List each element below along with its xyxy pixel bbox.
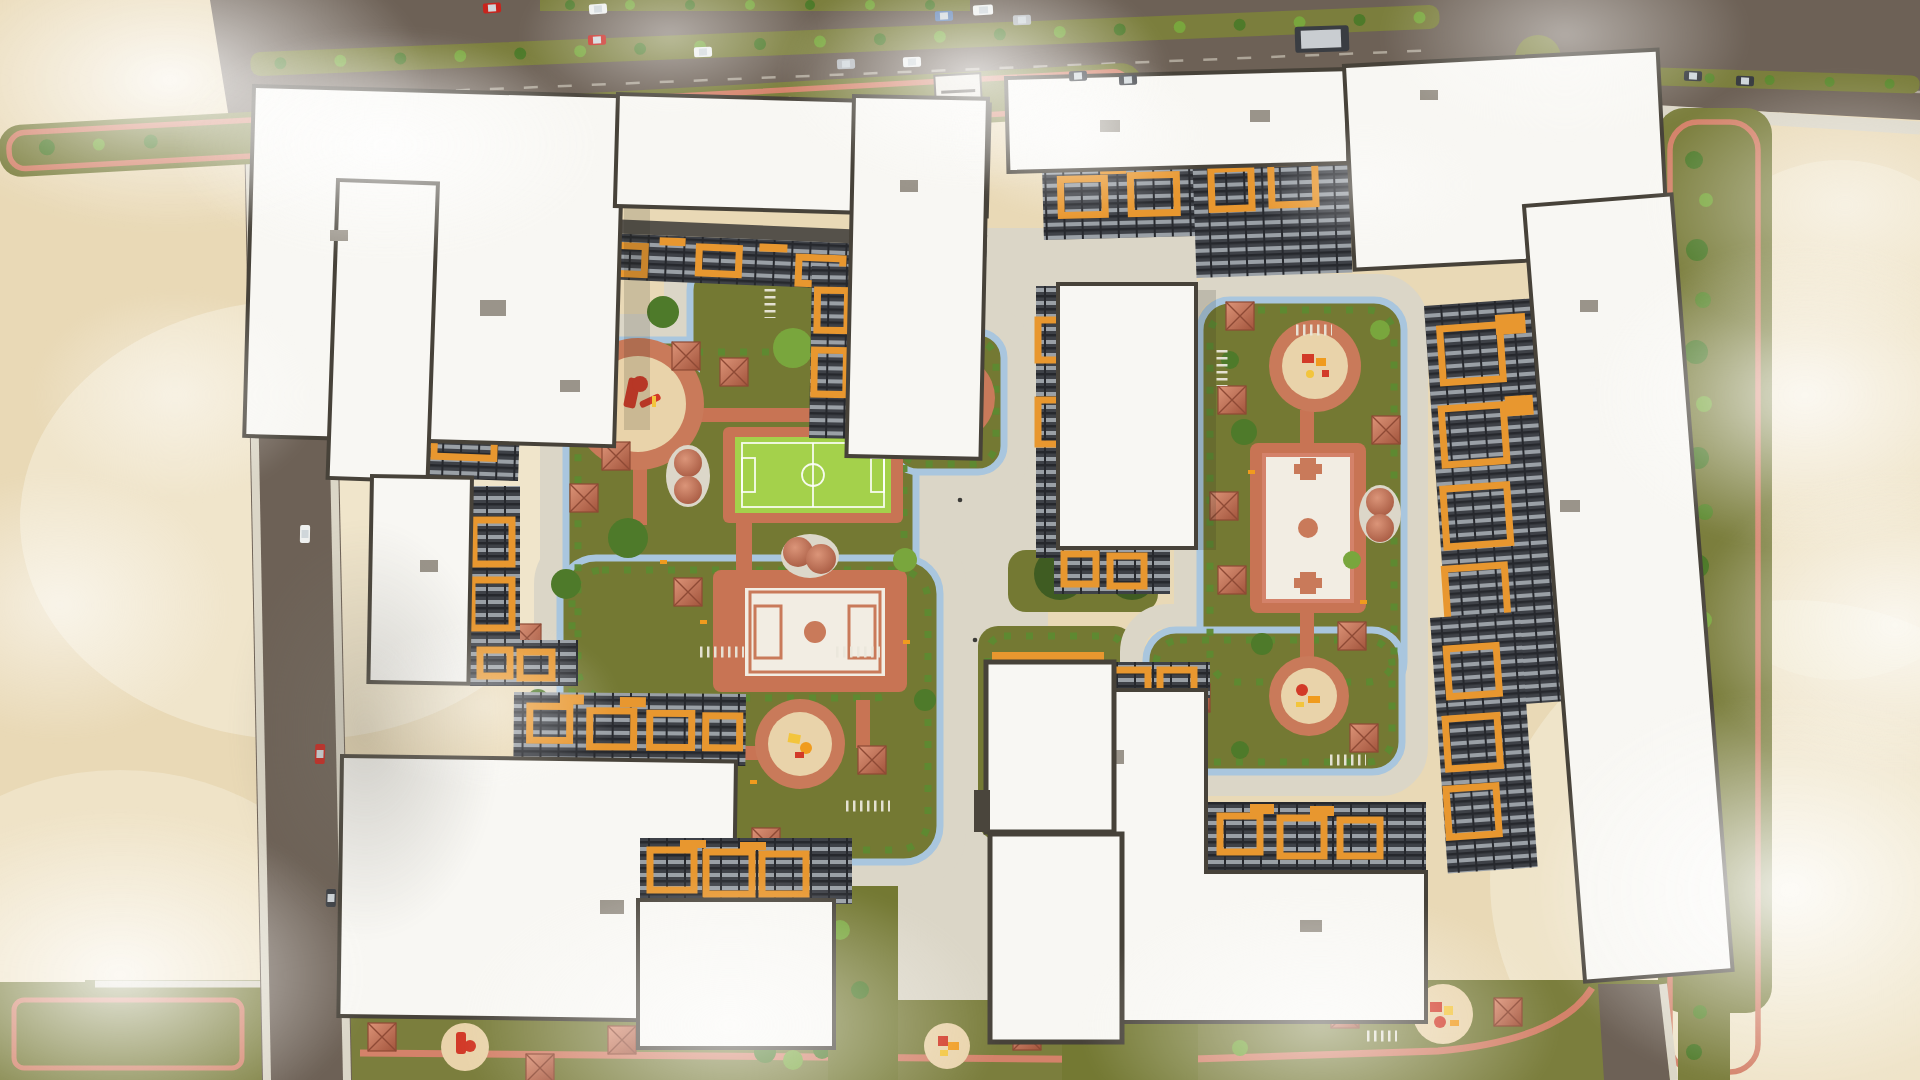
north-building-roof-east <box>1006 69 1348 172</box>
multipurpose-court <box>1250 443 1366 613</box>
car <box>694 47 712 58</box>
car <box>973 4 993 15</box>
basketball-court <box>713 570 907 692</box>
car <box>483 2 502 13</box>
car <box>588 35 606 46</box>
car <box>1013 15 1031 26</box>
round-playground-south-1 <box>441 1023 489 1071</box>
car <box>935 11 953 22</box>
southwest-lawn-corner <box>0 982 258 1080</box>
south-wing-facade <box>513 692 746 766</box>
car <box>1684 71 1702 82</box>
west-building-roof <box>328 180 438 481</box>
site-plan <box>0 0 1920 1080</box>
bus <box>1295 25 1350 53</box>
round-playground-south-2 <box>924 1023 970 1069</box>
domed-gazebo-west-2 <box>781 534 839 578</box>
round-playground-east-1 <box>1269 320 1361 412</box>
east-building-roof <box>846 96 988 459</box>
car <box>837 59 855 70</box>
domed-gazebo-west-1 <box>666 445 710 507</box>
south-center-building <box>638 838 852 1048</box>
car <box>1069 71 1087 82</box>
southeast-facade <box>1430 612 1538 874</box>
center-tower-roof-1 <box>986 662 1114 832</box>
domed-gazebo-east <box>1359 485 1401 543</box>
aerial-masterplan-render <box>0 0 1920 1080</box>
car <box>903 57 921 68</box>
car <box>326 889 337 907</box>
car <box>1119 75 1137 86</box>
car <box>1736 76 1754 87</box>
round-playground-west-3 <box>755 699 845 789</box>
car <box>300 525 310 543</box>
car <box>315 744 326 764</box>
center-tower-roof-2 <box>990 834 1122 1042</box>
southwest-building-roof <box>368 476 472 684</box>
west-building-roof-east <box>1058 284 1196 548</box>
round-playground-east-2 <box>1269 656 1349 736</box>
car <box>589 3 608 14</box>
southeast-road-stub <box>1598 984 1730 1080</box>
